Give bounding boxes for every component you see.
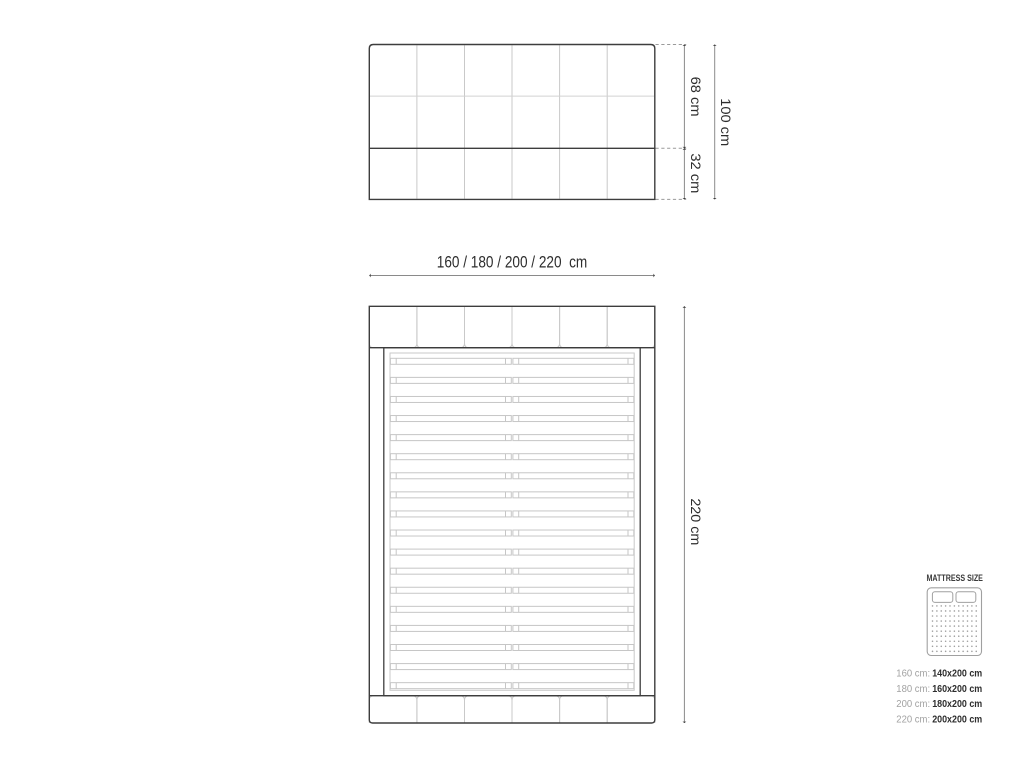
svg-text:100 cm: 100 cm bbox=[718, 98, 734, 146]
svg-text:32 cm: 32 cm bbox=[688, 153, 704, 193]
svg-text:140x200 cm: 140x200 cm bbox=[932, 668, 982, 679]
svg-text:180 cm:: 180 cm: bbox=[896, 684, 930, 695]
svg-text:200x200 cm: 200x200 cm bbox=[932, 715, 982, 726]
svg-text:180x200 cm: 180x200 cm bbox=[932, 699, 982, 710]
svg-text:220 cm:: 220 cm: bbox=[896, 715, 930, 726]
svg-text:MATTRESS SIZE: MATTRESS SIZE bbox=[926, 573, 983, 584]
svg-text:160 / 180 / 200 / 220 cm: 160 / 180 / 200 / 220 cm bbox=[437, 253, 588, 272]
svg-text:68 cm: 68 cm bbox=[688, 77, 704, 117]
svg-text:200 cm:: 200 cm: bbox=[896, 699, 930, 710]
svg-text:220 cm: 220 cm bbox=[688, 498, 704, 545]
svg-text:160x200 cm: 160x200 cm bbox=[932, 684, 982, 695]
svg-text:160 cm:: 160 cm: bbox=[896, 668, 930, 679]
